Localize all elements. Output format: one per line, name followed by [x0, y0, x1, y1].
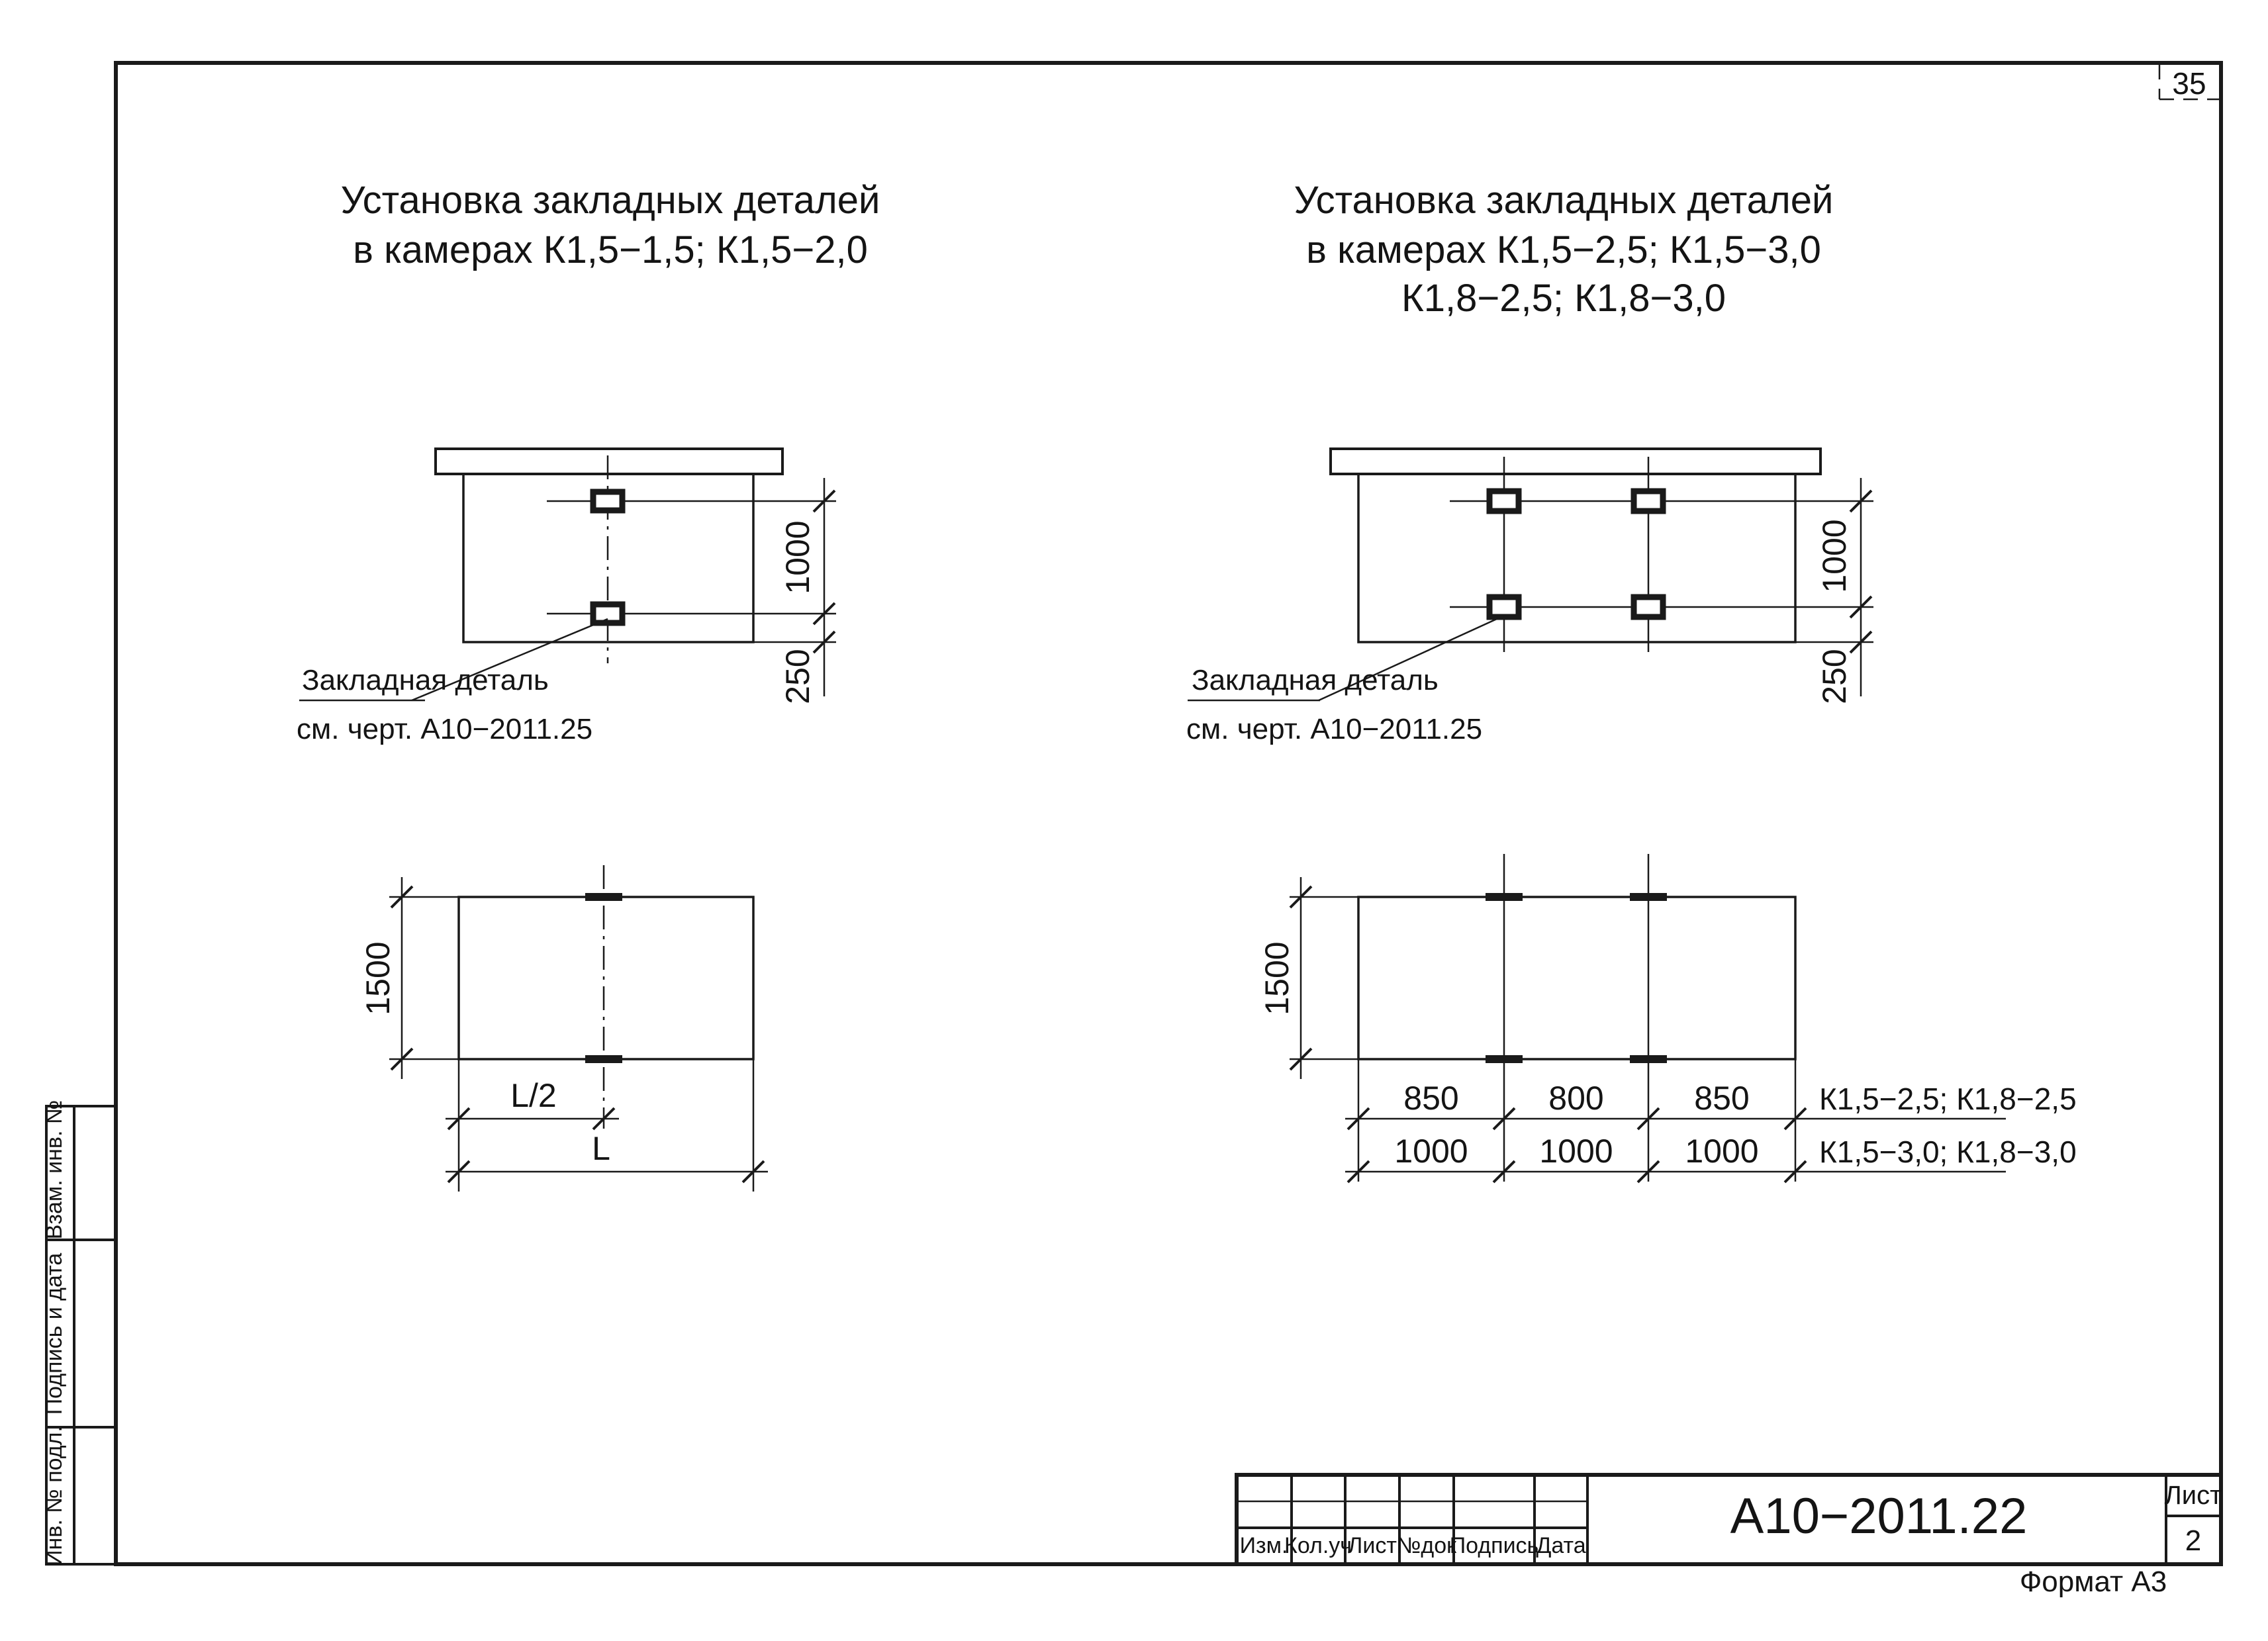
stamp-label-podpis: Подпись и дата	[42, 1253, 67, 1415]
stamp-label-vzam: Взам. инв. №	[42, 1100, 67, 1240]
dim-text-1000: 1000	[779, 520, 816, 594]
title-right-line3: К1,8−2,5; К1,8−3,0	[1401, 277, 1726, 320]
row1-chamber-label: К1,5−2,5; К1,8−2,5	[1819, 1082, 2077, 1116]
title-left: Установка закладных деталей в камерах К1…	[341, 179, 880, 271]
plan-view-left: 1500 L/2 L	[359, 865, 768, 1192]
plan-outline	[459, 897, 753, 1059]
slab-hatched	[1331, 449, 1820, 474]
embedded-part-mark	[1486, 893, 1523, 901]
callout-embedded-part: Закладная деталь	[302, 664, 549, 696]
stamp-label-inv: Инв. № подл.	[42, 1426, 67, 1566]
page-number: 35	[2172, 66, 2206, 101]
dim-text-1000-3: 1000	[1685, 1133, 1758, 1170]
dim-text-L: L	[592, 1130, 610, 1167]
drawing-sheet: 35 Установка закладных деталей в камерах…	[0, 0, 2268, 1641]
dim-text-1500: 1500	[359, 941, 397, 1015]
dim-text-250: 250	[1816, 649, 1853, 704]
side-stamp: Взам. инв. № Подпись и дата Инв. № подл.	[42, 1100, 116, 1566]
section-view-right: 1000 250 Закладная деталь см. черт. А10−…	[1186, 449, 1873, 745]
dim-text-1000-2: 1000	[1539, 1133, 1613, 1170]
embedded-part-top-left	[1489, 491, 1519, 511]
embedded-part-top-right	[1634, 491, 1663, 511]
dim-text-850-left: 850	[1403, 1080, 1458, 1117]
embedded-part-mark-bottom	[585, 1055, 622, 1063]
embedded-part-bottom	[593, 604, 622, 623]
callout-drawing-ref: см. черт. А10−2011.25	[1186, 713, 1482, 745]
sheet-value: 2	[2185, 1524, 2201, 1557]
title-left-line1: Установка закладных деталей	[341, 179, 880, 222]
col-podpis: Подпись	[1450, 1533, 1539, 1558]
embedded-part-mark	[1630, 893, 1667, 901]
embedded-part-bottom-left	[1489, 597, 1519, 617]
dim-text-250: 250	[779, 649, 816, 704]
dim-text-1000-1: 1000	[1394, 1133, 1468, 1170]
embedded-part-mark-top	[585, 893, 622, 901]
col-ndok: №док	[1397, 1533, 1457, 1558]
sheet-label: Лист	[2165, 1481, 2222, 1510]
col-data: Дата	[1536, 1533, 1585, 1558]
title-block: Изм. Кол.уч Лист №док Подпись Дата А10−2…	[1237, 1475, 2222, 1564]
title-right: Установка закладных деталей в камерах К1…	[1294, 179, 1834, 320]
document-number: А10−2011.22	[1730, 1488, 2028, 1544]
row2-chamber-label: К1,5−3,0; К1,8−3,0	[1819, 1135, 2077, 1169]
format-note: Формат А3	[2020, 1566, 2167, 1598]
embedded-part-top	[593, 492, 622, 510]
plan-outline	[1358, 897, 1795, 1059]
embedded-part-bottom-right	[1634, 597, 1663, 617]
callout-drawing-ref: см. черт. А10−2011.25	[297, 713, 592, 745]
title-left-line2: в камерах К1,5−1,5; К1,5−2,0	[353, 228, 868, 271]
title-right-line2: в камерах К1,5−2,5; К1,5−3,0	[1306, 228, 1821, 271]
embedded-part-mark	[1486, 1055, 1523, 1063]
dim-text-L2: L/2	[510, 1077, 557, 1114]
dim-text-1500: 1500	[1258, 941, 1296, 1015]
sheet-frame	[116, 63, 2221, 1564]
wall-outline	[1358, 474, 1795, 642]
dim-text-850-right: 850	[1694, 1080, 1749, 1117]
col-koluch: Кол.уч	[1284, 1533, 1352, 1558]
section-view-left: 1000 250 Закладная деталь см. черт. А10−…	[297, 449, 836, 745]
dim-text-800: 800	[1548, 1080, 1603, 1117]
slab-hatched	[436, 449, 782, 474]
plan-view-right: 1500 850 800 850 К1,5−2,5; К1,8−2,5 1000…	[1258, 854, 2077, 1182]
embedded-part-mark	[1630, 1055, 1667, 1063]
col-list: Лист	[1348, 1533, 1397, 1558]
page-number-box: 35	[2159, 65, 2219, 101]
title-right-line1: Установка закладных деталей	[1294, 179, 1834, 222]
dim-text-1000: 1000	[1816, 519, 1853, 592]
col-izm: Изм.	[1240, 1533, 1288, 1558]
callout-embedded-part: Закладная деталь	[1192, 664, 1439, 696]
